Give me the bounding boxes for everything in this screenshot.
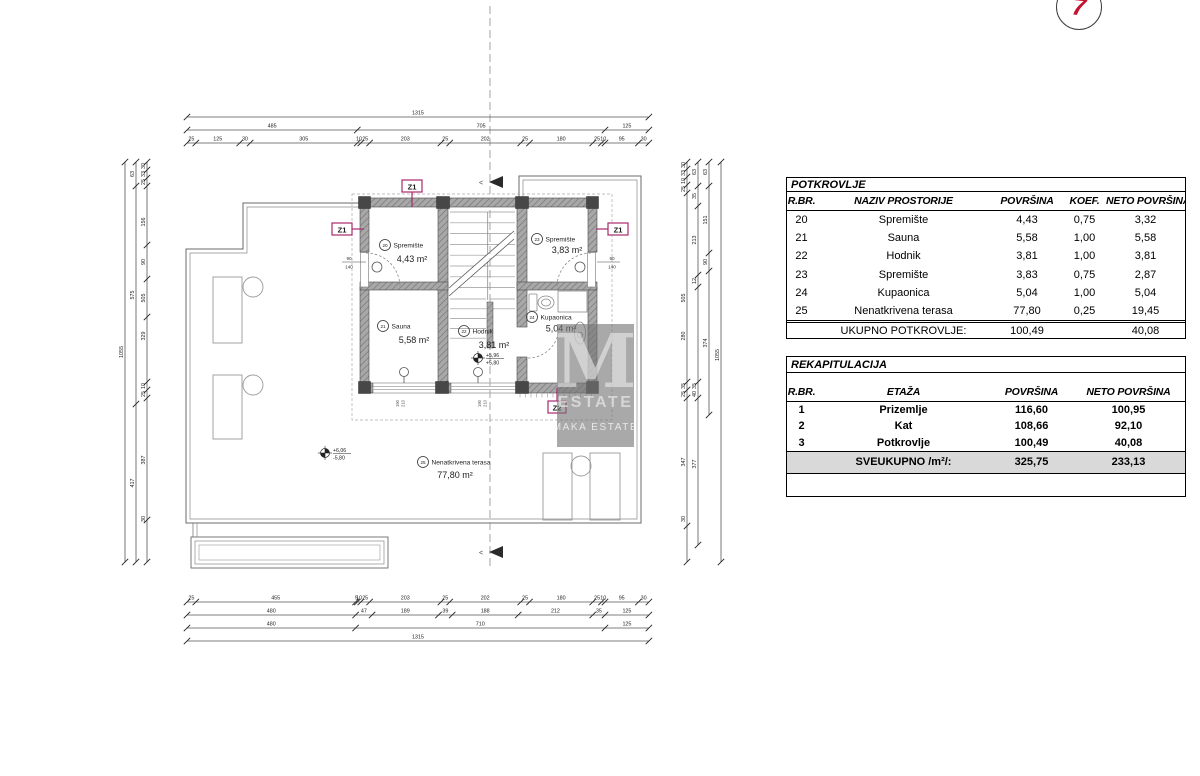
cell: 5,58 xyxy=(1106,232,1185,244)
dim-label: 47 xyxy=(361,609,367,615)
rekapitulacija-table: REKAPITULACIJA R.BR.ETAŽAPOVRŠINANETO PO… xyxy=(786,356,1186,497)
cell: 4,43 xyxy=(991,214,1063,226)
svg-text:Hodnik: Hodnik xyxy=(473,329,494,336)
dim-label: 30 xyxy=(681,162,687,168)
svg-text:Z1: Z1 xyxy=(614,226,624,235)
room-label-hodnik: 22 Hodnik 3,81 m² xyxy=(459,326,510,351)
dim-label: 30 xyxy=(141,516,147,522)
dim-label: 329 xyxy=(141,332,147,341)
dim-label: 63 xyxy=(692,169,698,175)
svg-text:Sauna: Sauna xyxy=(392,324,411,331)
elevation-marker-hodnik: +5,96 +5,80 xyxy=(471,351,504,367)
dim-label: 25 xyxy=(594,596,600,602)
cell: 23 xyxy=(787,269,816,281)
table-body: 20Spremište4,430,753,3221Sauna5,581,005,… xyxy=(787,211,1185,320)
cell: NETO POVRŠINA xyxy=(1072,386,1185,398)
cell: Spremište xyxy=(816,214,991,226)
cell: Spremište xyxy=(816,269,991,281)
svg-text:23: 23 xyxy=(534,237,540,242)
cell: 0,75 xyxy=(1063,214,1106,226)
stairs xyxy=(450,212,515,338)
svg-text:21: 21 xyxy=(380,324,386,329)
dim-label: 30 xyxy=(641,596,647,602)
dim-label: 125 xyxy=(213,137,222,143)
dim-label: 33 xyxy=(141,171,147,177)
dim-label: 202 xyxy=(481,137,490,143)
dim-label: 505 xyxy=(141,294,147,303)
svg-text:Kupaonica: Kupaonica xyxy=(541,315,572,322)
dim-label: 10 xyxy=(681,178,687,184)
dim-label: 480 xyxy=(267,622,276,628)
dim-label: 151 xyxy=(703,216,709,225)
cell: 22 xyxy=(787,250,816,262)
window-dimensions: 190 210 190 210 xyxy=(395,399,488,407)
side-table xyxy=(243,375,263,395)
table-header: R.BR.NAZIV PROSTORIJEPOVRŠINAKOEF.NETO P… xyxy=(787,192,1185,211)
potkrovlje-table: POTKROVLJE R.BR.NAZIV PROSTORIJEPOVRŠINA… xyxy=(786,177,1186,339)
dim-label: 25 xyxy=(442,137,448,143)
cell: NAZIV PROSTORIJE xyxy=(816,195,991,207)
table-total-row: UKUPNO POTKROVLJE:100,4940,08 xyxy=(787,320,1185,338)
cell: R.BR. xyxy=(787,386,816,398)
cell: 2 xyxy=(787,420,816,432)
dim-label: 10 xyxy=(600,137,606,143)
cell: 20 xyxy=(787,214,816,226)
dim-label: 156 xyxy=(141,218,147,227)
svg-text:24: 24 xyxy=(529,315,535,320)
dim-label: 25 xyxy=(442,596,448,602)
table-title: REKAPITULACIJA xyxy=(787,357,1185,373)
cell: 3 xyxy=(787,437,816,449)
dim-label: 710 xyxy=(476,622,485,628)
table-row: 24Kupaonica5,041,005,04 xyxy=(787,284,1185,302)
dim-label: 305 xyxy=(299,137,308,143)
terrace-outline xyxy=(186,176,641,568)
svg-text:Spremište: Spremište xyxy=(546,237,576,244)
dim-label: 25 xyxy=(188,137,194,143)
cell: Kupaonica xyxy=(816,287,991,299)
toilet-bowl xyxy=(538,296,554,309)
cell: Sauna xyxy=(816,232,991,244)
dim-label: 1055 xyxy=(715,349,721,361)
svg-text:140: 140 xyxy=(345,265,353,270)
dim-label: 35 xyxy=(692,193,698,199)
door-markers xyxy=(372,262,585,383)
side-table xyxy=(571,456,591,476)
cell: 19,45 xyxy=(1106,305,1185,317)
dim-label: 12 xyxy=(692,278,698,284)
cell: R.BR. xyxy=(787,195,816,207)
dim-label: 480 xyxy=(267,609,276,615)
svg-text:+5,96: +5,96 xyxy=(486,353,499,359)
svg-text:<: < xyxy=(479,180,483,187)
dim-label: 10 xyxy=(356,596,362,602)
dim-label: 30 xyxy=(141,163,147,169)
dim-label: 33 xyxy=(681,170,687,176)
table-row: 22Hodnik3,811,003,81 xyxy=(787,247,1185,265)
svg-text:+6,06: +6,06 xyxy=(333,448,346,454)
lounger xyxy=(213,277,242,343)
dim-label: 455 xyxy=(271,596,280,602)
dim-label: 125 xyxy=(622,609,631,615)
dim-label: 25 xyxy=(681,186,687,192)
dim-label: 485 xyxy=(268,124,277,130)
dim-label: 10 xyxy=(141,383,147,389)
table-row: 3Potkrovlje100,4940,08 xyxy=(787,435,1185,451)
dim-label: 35 xyxy=(681,383,687,389)
dim-label: 95 xyxy=(619,137,625,143)
dim-label: 90 xyxy=(141,259,147,265)
lounger xyxy=(213,375,242,439)
dim-label: 347 xyxy=(681,458,687,467)
dim-label: 25 xyxy=(141,391,147,397)
svg-text:Z1: Z1 xyxy=(338,226,348,235)
dim-label: 30 xyxy=(242,137,248,143)
table-row: 1Prizemlje116,60100,95 xyxy=(787,402,1185,418)
sheet-number: 7 xyxy=(1071,0,1088,22)
svg-text:Nenatkrivena terasa: Nenatkrivena terasa xyxy=(432,460,491,467)
svg-text:20: 20 xyxy=(382,243,388,248)
cell: 0,25 xyxy=(1063,305,1106,317)
cell: 325,75 xyxy=(991,456,1072,468)
cell: 116,60 xyxy=(991,404,1072,416)
dim-label: 125 xyxy=(622,622,631,628)
dim-label: 212 xyxy=(551,609,560,615)
table-title: POTKROVLJE xyxy=(787,178,1185,192)
cell: 1 xyxy=(787,404,816,416)
room-label-spremiste-20: 20 Spremište 4,43 m² xyxy=(380,240,428,265)
dim-label: 30 xyxy=(641,137,647,143)
dim-label: 203 xyxy=(401,596,410,602)
dim-label: 189 xyxy=(401,609,410,615)
dim-label: 213 xyxy=(692,236,698,245)
cell: 1,00 xyxy=(1063,250,1106,262)
svg-text:190: 190 xyxy=(477,399,482,407)
svg-text:77,80 m²: 77,80 m² xyxy=(437,470,473,480)
dim-label: 25 xyxy=(594,137,600,143)
cell: 0,75 xyxy=(1063,269,1106,281)
elevation-marker-terrace: +6,06 -5,80 xyxy=(318,446,351,462)
cell: 1,00 xyxy=(1063,287,1106,299)
dim-label: 25 xyxy=(522,596,528,602)
svg-text:3,81 m²: 3,81 m² xyxy=(479,340,510,350)
cell: 3,81 xyxy=(1106,250,1185,262)
cell: Prizemlje xyxy=(816,404,991,416)
dim-label: 203 xyxy=(401,137,410,143)
table-row: 25Nenatkrivena terasa77,800,2519,45 xyxy=(787,302,1185,320)
svg-text:25: 25 xyxy=(420,460,426,465)
svg-text:22: 22 xyxy=(461,329,467,334)
cell: 100,95 xyxy=(1072,404,1185,416)
dim-label: 10 xyxy=(600,596,606,602)
cell: ETAŽA xyxy=(816,386,991,398)
dim-label: 25 xyxy=(362,137,368,143)
cell: Nenatkrivena terasa xyxy=(816,305,991,317)
svg-text:-5,80: -5,80 xyxy=(333,456,345,462)
cell: 2,87 xyxy=(1106,269,1185,281)
table-body: 1Prizemlje116,60100,952Kat108,6692,103Po… xyxy=(787,402,1185,451)
toilet-tank xyxy=(529,294,537,311)
svg-text:190: 190 xyxy=(395,399,400,407)
svg-text:90: 90 xyxy=(346,256,352,261)
cell: SVEUKUPNO /m²/: xyxy=(816,456,991,468)
dim-label: 25 xyxy=(522,137,528,143)
cell: 92,10 xyxy=(1072,420,1185,432)
dim-label: 417 xyxy=(130,479,136,488)
table-row: 20Spremište4,430,753,32 xyxy=(787,211,1185,229)
cell: 233,13 xyxy=(1072,456,1185,468)
side-table xyxy=(243,277,263,297)
dim-label: 575 xyxy=(130,291,136,300)
cell: 40,08 xyxy=(1072,437,1185,449)
cell: 5,04 xyxy=(1106,287,1185,299)
cell: 3,32 xyxy=(1106,214,1185,226)
dim-label: 25 xyxy=(188,596,194,602)
cell: 108,66 xyxy=(991,420,1072,432)
svg-text:3,83 m²: 3,83 m² xyxy=(552,245,583,255)
dim-label: 25 xyxy=(362,596,368,602)
svg-text:5,58 m²: 5,58 m² xyxy=(399,335,430,345)
svg-text:210: 210 xyxy=(483,399,488,407)
cell: Hodnik xyxy=(816,250,991,262)
cell: POVRŠINA xyxy=(991,195,1063,207)
svg-text:140: 140 xyxy=(608,265,616,270)
cell: 1,00 xyxy=(1063,232,1106,244)
cell: 3,81 xyxy=(991,250,1063,262)
dim-label: 63 xyxy=(130,171,136,177)
z-markers: Z1 Z1 Z1 Z2 xyxy=(332,180,628,413)
svg-text:4,43 m²: 4,43 m² xyxy=(397,254,428,264)
table-empty-row xyxy=(787,474,1185,496)
dim-label: 180 xyxy=(557,137,566,143)
paver-edge xyxy=(520,394,592,398)
cell: UKUPNO POTKROVLJE: xyxy=(816,325,991,337)
cell: 3,83 xyxy=(991,269,1063,281)
svg-text:Z1: Z1 xyxy=(408,183,418,192)
dim-label: 35 xyxy=(692,383,698,389)
dim-label: 1315 xyxy=(412,635,424,641)
dim-label: 1315 xyxy=(412,111,424,117)
section-arrow-icon xyxy=(489,546,503,558)
dim-label: 25 xyxy=(141,179,147,185)
dim-label: 10 xyxy=(356,137,362,143)
dim-label: 202 xyxy=(481,596,490,602)
svg-text:<: < xyxy=(479,550,483,557)
lounger xyxy=(590,453,620,520)
dim-label: 1055 xyxy=(119,346,125,358)
dim-label: 35 xyxy=(596,609,602,615)
dim-label: 705 xyxy=(477,124,486,130)
svg-text:90: 90 xyxy=(609,256,615,261)
sheet: 90 140 90 140 190 210 190 210 < < xyxy=(0,0,1200,776)
svg-text:Z2: Z2 xyxy=(553,404,562,413)
dim-label: 30 xyxy=(681,516,687,522)
room-label-terasa: 25 Nenatkrivena terasa 77,80 m² xyxy=(418,457,491,481)
shower xyxy=(558,291,587,312)
cell: 40,08 xyxy=(1106,325,1185,337)
dim-label: 374 xyxy=(703,339,709,348)
table-row: 23Spremište3,830,752,87 xyxy=(787,266,1185,284)
cell: 24 xyxy=(787,287,816,299)
table-row: 2Kat108,6692,10 xyxy=(787,418,1185,434)
dim-label: 25 xyxy=(681,391,687,397)
dim-label: 180 xyxy=(557,596,566,602)
section-line: < < xyxy=(479,6,503,568)
cell: Kat xyxy=(816,420,991,432)
svg-text:5,04 m²: 5,04 m² xyxy=(546,324,577,334)
dim-label: 39 xyxy=(442,609,448,615)
cell: 100,49 xyxy=(991,437,1072,449)
table-row: 21Sauna5,581,005,58 xyxy=(787,229,1185,247)
svg-text:210: 210 xyxy=(401,399,406,407)
lounger xyxy=(543,453,572,520)
cell: POVRŠINA xyxy=(991,386,1072,398)
table-total-row: SVEUKUPNO /m²/:325,75233,13 xyxy=(787,451,1185,474)
dim-label: 63 xyxy=(703,169,709,175)
dim-label: 505 xyxy=(681,294,687,303)
cell: 77,80 xyxy=(991,305,1063,317)
building-walls xyxy=(359,197,599,394)
dim-label: 280 xyxy=(681,332,687,341)
cell: 100,49 xyxy=(991,325,1063,337)
room-label-spremiste-23: 23 Spremište 3,83 m² xyxy=(532,234,583,256)
cell: NETO POVRŠINA xyxy=(1106,195,1185,207)
terrace-furniture xyxy=(213,277,620,520)
cell: 21 xyxy=(787,232,816,244)
dim-label: 188 xyxy=(481,609,490,615)
dim-label: 40 xyxy=(692,391,698,397)
cell: KOEF. xyxy=(1063,195,1106,207)
room-label-sauna: 21 Sauna 5,58 m² xyxy=(378,321,430,346)
svg-text:+5,80: +5,80 xyxy=(486,361,499,367)
dim-label: 125 xyxy=(622,124,631,130)
section-arrow-icon xyxy=(489,176,503,188)
svg-text:Spremište: Spremište xyxy=(394,243,424,250)
table-header: R.BR.ETAŽAPOVRŠINANETO POVRŠINA xyxy=(787,373,1185,402)
cell: 5,58 xyxy=(991,232,1063,244)
cell: Potkrovlje xyxy=(816,437,991,449)
dim-label: 95 xyxy=(619,596,625,602)
room-label-kupaonica: 24 Kupaonica 5,04 m² xyxy=(527,312,577,334)
cell: 25 xyxy=(787,305,816,317)
dim-label: 377 xyxy=(692,460,698,469)
dim-label: 90 xyxy=(703,259,709,265)
dim-label: 387 xyxy=(141,456,147,465)
cell: 5,04 xyxy=(991,287,1063,299)
